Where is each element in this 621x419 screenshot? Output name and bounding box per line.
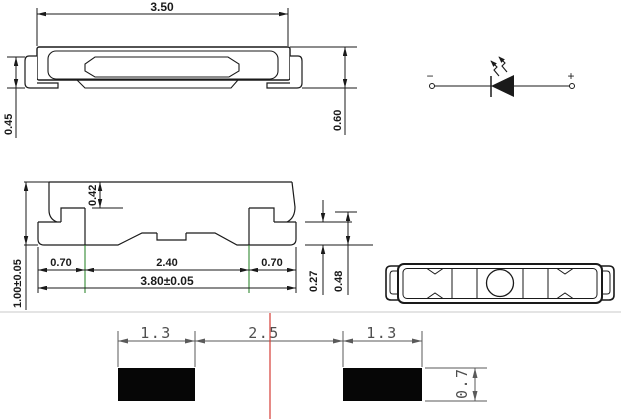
side-view-body	[25, 47, 302, 88]
land-pattern: 1.3 2.5 1.3 0.7	[0, 312, 621, 419]
diode-triangle	[491, 75, 514, 97]
left-step	[61, 208, 85, 222]
datasheet-drawing-page: 3.50 0.45 0.60	[0, 0, 621, 419]
dim-label-center: 2.40	[156, 257, 177, 269]
bottom-view	[386, 264, 614, 303]
light-emission-arrow	[491, 61, 499, 76]
dimension-right-vertical-group: 0.27 0.48	[305, 200, 373, 295]
cathode-sign: −	[426, 69, 433, 83]
right-step	[249, 208, 274, 222]
light-emission-arrow	[499, 57, 507, 72]
dim-label-left-lead: 0.70	[50, 257, 71, 269]
left-wall	[49, 182, 57, 222]
dimension-horizontal-group: 0.70 2.40 0.70 3.80±0.05	[38, 245, 296, 293]
dim-label-width: 3.50	[150, 0, 174, 14]
dim-label-left-pad: 1.3	[140, 324, 172, 342]
cross-section-view: 0.42 1.00±0.05 0.70 2.40 0.70 3.80±0.05	[12, 182, 373, 310]
dimension-lead-height-0-45: 0.45	[3, 57, 25, 138]
body-outline	[37, 47, 290, 80]
dim-label-lead-height: 0.45	[3, 114, 15, 135]
dim-label-lead-height: 0.48	[333, 271, 345, 292]
led-schematic-symbol: − +	[426, 57, 574, 97]
solder-pad-left	[118, 368, 195, 401]
bottom-center-strip	[77, 80, 238, 88]
bottom-profile	[44, 233, 290, 245]
dimension-step-0-42: 0.42	[87, 182, 123, 208]
dim-label-gap: 2.5	[248, 324, 280, 342]
dim-label-height: 1.00±0.05	[12, 259, 24, 308]
side-view: 3.50 0.45 0.60	[3, 0, 357, 138]
cathode-terminal-dot	[430, 84, 435, 89]
dimension-width-3-50: 3.50	[37, 0, 288, 46]
dim-label-right-pad: 1.3	[366, 324, 398, 342]
right-wall	[287, 182, 295, 222]
right-flange-edge	[290, 222, 296, 245]
dim-label-total-height: 0.60	[332, 110, 344, 131]
anode-sign: +	[567, 69, 574, 83]
cross-section-outline	[38, 182, 296, 245]
solder-pad-right	[343, 368, 422, 401]
dim-label-overall-width: 3.80±0.05	[140, 274, 194, 288]
dim-label-standoff: 0.27	[308, 271, 320, 292]
left-flange-edge	[38, 222, 44, 245]
dim-label-pad-height: 0.7	[453, 367, 471, 399]
dimension-height-1-00: 1.00±0.05	[12, 182, 49, 310]
dim-label-right-lead: 0.70	[261, 257, 282, 269]
anode-terminal-dot	[570, 84, 575, 89]
package-dimension-drawing: 3.50 0.45 0.60	[0, 0, 621, 419]
dim-label-step: 0.42	[87, 185, 99, 206]
